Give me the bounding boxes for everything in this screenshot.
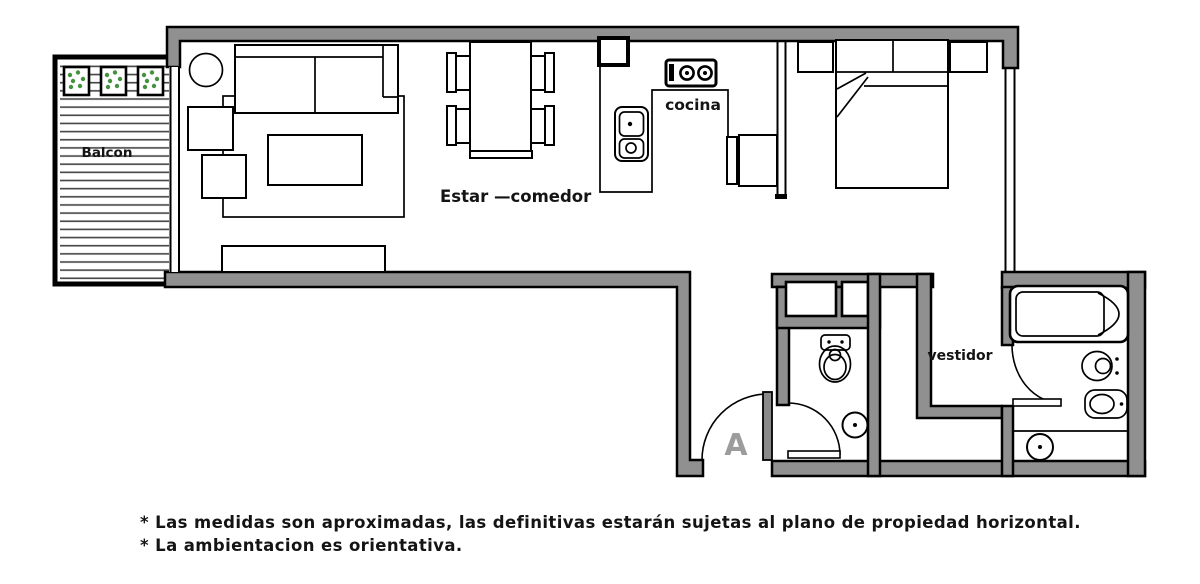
wall-living-bottom <box>165 272 703 476</box>
dining-chair <box>531 56 545 90</box>
washbasin <box>1027 434 1053 460</box>
bathroom <box>1010 286 1128 460</box>
wall-bottom-right <box>772 461 1145 476</box>
wall-vestidor <box>917 274 1002 418</box>
side-table <box>202 155 246 198</box>
door-leaf <box>1013 399 1061 406</box>
dining-chair <box>531 109 545 143</box>
wall-bathroom-left-lower <box>1002 406 1013 476</box>
footnotes: * Las medidas son aproximadas, las defin… <box>140 513 1081 555</box>
bed <box>836 40 948 188</box>
side-table <box>188 107 233 150</box>
bedroom-window <box>1006 68 1015 272</box>
toilet-room-door <box>788 403 840 458</box>
dining-table-edge <box>470 151 532 158</box>
vestidor: vestidor <box>928 348 993 364</box>
dining-chair <box>456 56 470 90</box>
toilet-room <box>788 335 868 458</box>
tv-cabinet <box>222 246 385 272</box>
coffee-table <box>268 135 362 185</box>
dining-chair <box>456 109 470 143</box>
vestidor-label: vestidor <box>928 348 993 364</box>
floor-plan-canvas: Balcon <box>0 0 1200 584</box>
planter <box>101 67 126 95</box>
plant-pot <box>190 54 223 87</box>
toilet <box>820 335 851 382</box>
planter <box>138 67 163 95</box>
balcony-window <box>169 67 180 272</box>
balcony-label: Balcon <box>82 145 133 161</box>
nightstand <box>798 42 833 72</box>
dining-chair <box>447 106 456 145</box>
bedroom <box>798 40 987 188</box>
balcony: Balcon <box>55 57 177 284</box>
entry-door-label: A <box>724 428 748 463</box>
column <box>599 38 628 65</box>
cabinet-niche <box>786 282 836 316</box>
washbasin <box>843 413 868 438</box>
kitchen-label: cocina <box>665 96 721 114</box>
wall-bathroom-right <box>1128 272 1145 476</box>
entry: A <box>702 392 772 463</box>
cabinet-niche <box>842 282 868 316</box>
sofa <box>235 45 398 113</box>
living-dining-label: Estar —comedor <box>440 187 592 206</box>
dining-set <box>447 42 554 158</box>
fridge <box>727 135 777 186</box>
kitchen: cocina <box>599 38 777 192</box>
floor-plan-page: Balcon <box>0 0 1200 584</box>
planter <box>64 67 89 95</box>
footnote-line-2: * La ambientacion es orientativa. <box>140 536 463 555</box>
nightstand <box>950 42 987 72</box>
living-dining-room: Estar —comedor <box>188 42 592 272</box>
stove <box>666 60 716 86</box>
kitchen-sink <box>615 107 648 161</box>
dining-chair <box>545 53 554 92</box>
dining-table <box>470 42 531 151</box>
wall-toilet-room-right <box>868 274 880 476</box>
bidet <box>1085 390 1127 418</box>
dining-chair <box>545 106 554 145</box>
footnote-line-1: * Las medidas son aproximadas, las defin… <box>140 513 1081 532</box>
dining-chair <box>447 53 456 92</box>
door-leaf <box>788 451 840 458</box>
toilet <box>1082 352 1119 381</box>
bathtub <box>1010 286 1128 342</box>
entry-door-leaf <box>763 392 772 460</box>
bathroom-door <box>1012 345 1061 406</box>
